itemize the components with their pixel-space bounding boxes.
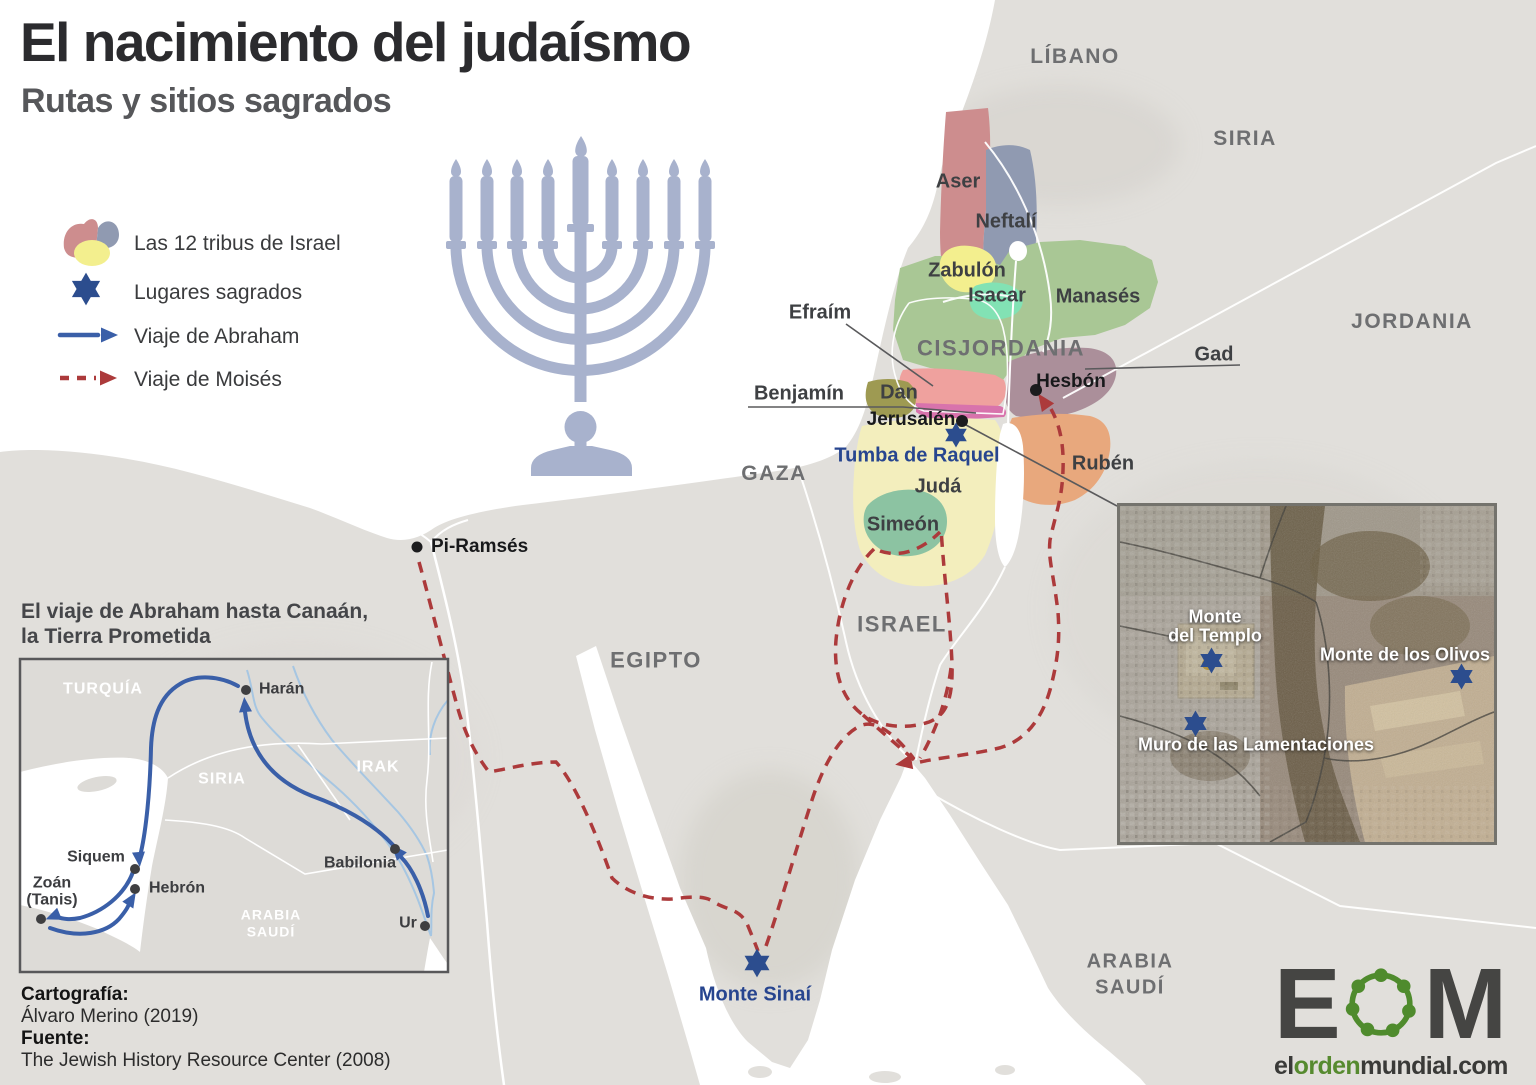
page-title: El nacimiento del judaísmo [20, 14, 690, 72]
inset-title-line2: la Tierra Prometida [21, 626, 211, 648]
label-israel: ISRAEL [857, 612, 947, 635]
eom-url-orden[interactable]: orden [1294, 1052, 1360, 1080]
inset-label-hebron: Hebrón [149, 881, 205, 898]
credit-cartography-value: Álvaro Merino (2019) [21, 1007, 198, 1027]
legend-moses-label: Viaje de Moisés [134, 368, 282, 392]
inset-label-siquem: Siquem [67, 850, 125, 867]
label-siria: SIRIA [1213, 128, 1277, 150]
label-tribe-aser: Aser [936, 172, 980, 193]
inset-map [20, 659, 448, 972]
label-egipto: EGIPTO [610, 648, 702, 671]
label-tribe-manases: Manasés [1056, 287, 1141, 308]
label-tribe-isacar: Isacar [968, 286, 1026, 307]
eom-globe-icon [1341, 964, 1421, 1044]
eom-letter-m: M [1424, 962, 1504, 1047]
eom-url-rest[interactable]: mundial.com [1360, 1052, 1508, 1080]
credit-source-label: Fuente: [21, 1029, 90, 1049]
eom-logo: E M elordenmundial.com [1274, 958, 1524, 1081]
inset-label-haran: Harán [259, 682, 304, 699]
eom-logo-letters: E M [1274, 958, 1524, 1050]
label-tribe-gad: Gad [1195, 345, 1234, 366]
inset-label-arabia-line1: ARABIA [241, 908, 301, 923]
satellite-image [1120, 506, 1494, 842]
label-libano: LÍBANO [1030, 46, 1120, 68]
label-tribe-simeon: Simeón [867, 515, 939, 536]
inset-label-zoan-line1: Zoán [33, 876, 71, 893]
infographic-map: El nacimiento del judaísmo Rutas y sitio… [0, 0, 1536, 1085]
inset-label-turquia: TURQUÍA [63, 682, 143, 699]
label-arabia-line2: SAUDÍ [1095, 978, 1165, 999]
label-tumba-de-raquel: Tumba de Raquel [834, 446, 999, 467]
eom-url[interactable]: elordenmundial.com [1274, 1052, 1524, 1081]
eom-url-el[interactable]: el [1274, 1052, 1294, 1080]
legend-item-sacred: Lugares sagrados [56, 270, 302, 316]
legend-abraham-label: Viaje de Abraham [134, 325, 299, 349]
label-tribe-dan: Dan [880, 383, 918, 404]
legend-item-moses: Viaje de Moisés [56, 357, 282, 403]
inset-label-siria: SIRIA [198, 772, 246, 789]
label-piramses: Pi-Ramsés [431, 537, 528, 557]
label-jerusalen: Jerusalén [867, 410, 956, 430]
legend-sacred-label: Lugares sagrados [134, 281, 302, 305]
legend-item-tribes: Las 12 tribus de Israel [56, 221, 341, 267]
sat-label-temple-line1: Monte [1189, 608, 1242, 627]
inset-label-ur: Ur [399, 916, 417, 933]
label-jordania: JORDANIA [1351, 311, 1473, 333]
label-arabia-line1: ARABIA [1087, 952, 1174, 973]
label-tribe-zabulon: Zabulón [928, 261, 1006, 282]
label-tribe-efraim: Efraím [789, 303, 851, 324]
inset-label-arabia-line2: SAUDÍ [247, 925, 296, 940]
credit-source-value: The Jewish History Resource Center (2008… [21, 1051, 391, 1071]
label-cisjordania: CISJORDANIA [917, 336, 1085, 359]
label-tribe-neftali: Neftalí [975, 212, 1036, 233]
label-tribe-benjamin: Benjamín [754, 384, 844, 405]
inset-label-irak: IRAK [356, 760, 399, 777]
credit-cartography-label: Cartografía: [21, 985, 129, 1005]
page-subtitle: Rutas y sitios sagrados [21, 84, 391, 120]
inset-label-babilonia: Babilonia [324, 856, 396, 873]
sat-label-olives: Monte de los Olivos [1320, 646, 1490, 665]
label-hesbon: Hesbón [1036, 372, 1106, 392]
legend-tribes-label: Las 12 tribus de Israel [134, 232, 341, 256]
sat-label-wall: Muro de las Lamentaciones [1138, 736, 1374, 755]
sat-label-temple-line2: del Templo [1168, 627, 1262, 646]
label-monte-sinai: Monte Sinaí [699, 985, 811, 1006]
legend-item-abraham: Viaje de Abraham [56, 314, 299, 360]
inset-label-zoan-line2: (Tanis) [26, 893, 77, 910]
inset-title-line1: El viaje de Abraham hasta Canaán, [21, 601, 368, 623]
label-gaza: GAZA [741, 463, 807, 485]
label-tribe-ruben: Rubén [1072, 454, 1134, 475]
eom-letter-e: E [1274, 962, 1338, 1047]
jerusalem-satellite-inset: Monte del Templo Monte de los Olivos Mur… [1117, 503, 1497, 845]
label-tribe-juda: Judá [915, 477, 962, 498]
